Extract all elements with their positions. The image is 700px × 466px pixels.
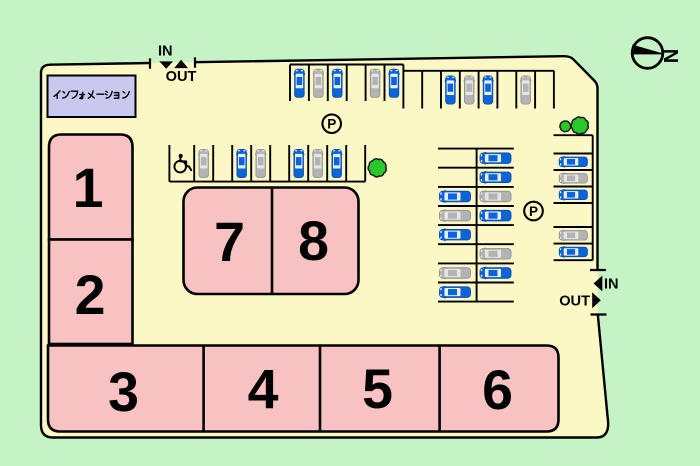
svg-text:OUT: OUT (559, 293, 590, 309)
svg-text:1: 1 (73, 157, 104, 219)
svg-text:OUT: OUT (166, 69, 197, 85)
svg-text:6: 6 (482, 359, 513, 421)
svg-text:8: 8 (298, 210, 329, 272)
svg-text:3: 3 (108, 361, 139, 423)
svg-text:P: P (327, 117, 336, 132)
svg-text:5: 5 (362, 358, 393, 420)
svg-text:N: N (659, 49, 681, 63)
svg-text:P: P (529, 204, 538, 219)
svg-text:2: 2 (75, 264, 106, 326)
svg-text:7: 7 (214, 211, 245, 273)
svg-text:IN: IN (604, 277, 619, 293)
svg-text:IN: IN (158, 44, 173, 60)
svg-text:4: 4 (248, 359, 279, 421)
